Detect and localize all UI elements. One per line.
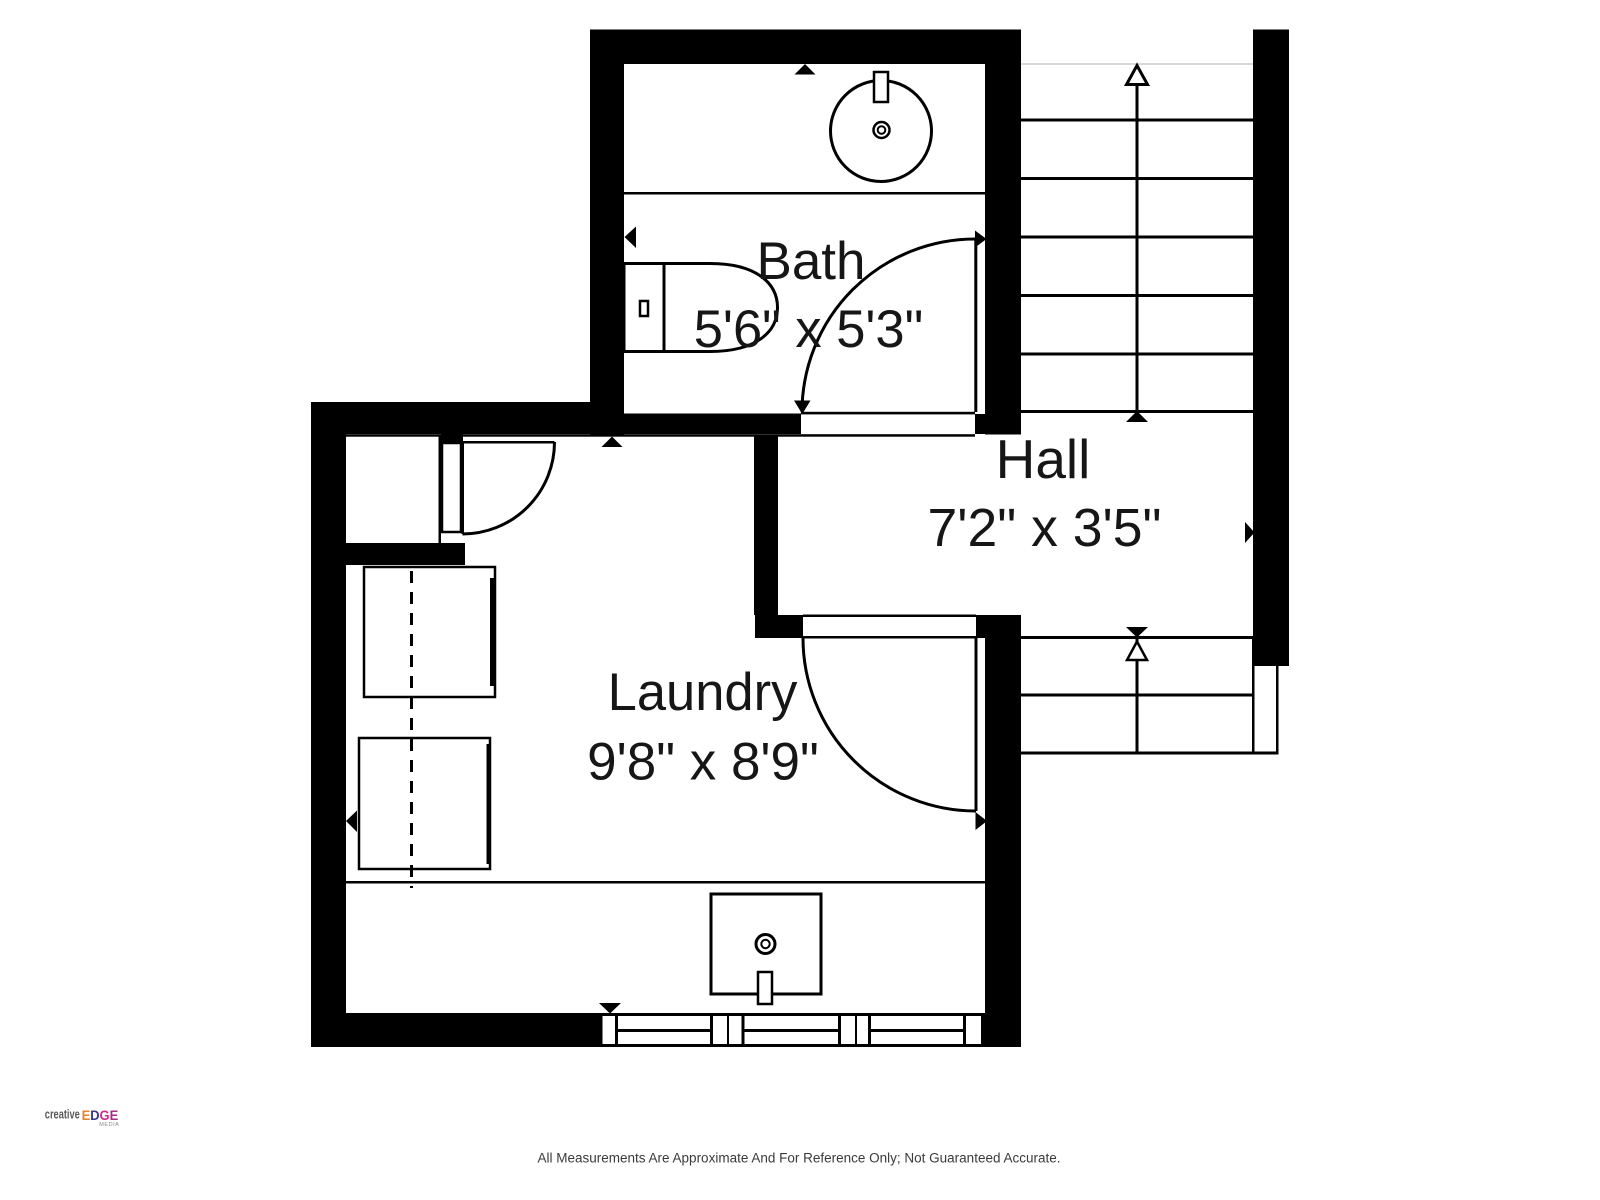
svg-text:EDGE: EDGE	[82, 1107, 119, 1123]
svg-text:creative: creative	[45, 1108, 80, 1122]
svg-text:Bath: Bath	[756, 232, 865, 291]
svg-text:Laundry: Laundry	[608, 663, 798, 722]
svg-text:5'6" x 5'3": 5'6" x 5'3"	[694, 300, 924, 359]
svg-text:Hall: Hall	[996, 428, 1091, 490]
svg-text:7'2" x 3'5": 7'2" x 3'5"	[928, 499, 1162, 558]
svg-text:All Measurements Are Approxima: All Measurements Are Approximate And For…	[537, 1151, 1060, 1166]
svg-text:9'8" x 8'9": 9'8" x 8'9"	[587, 733, 819, 792]
svg-text:MEDIA: MEDIA	[99, 1122, 119, 1128]
